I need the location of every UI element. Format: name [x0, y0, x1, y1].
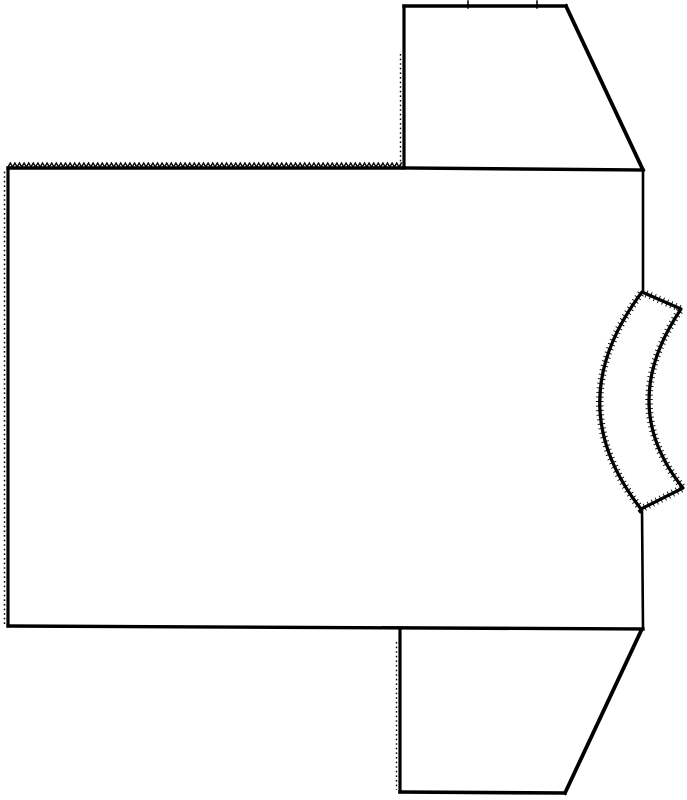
- body-panel-outline: [5, 163, 644, 629]
- bottom-sleeve-edge: [565, 631, 641, 793]
- pattern-sheet: [0, 0, 687, 800]
- body-panel-edge: [403, 168, 643, 170]
- top-sleeve-edge: [566, 6, 643, 170]
- body-panel-edge: [642, 509, 643, 629]
- bottom-sleeve-outline: [397, 629, 642, 793]
- top-sleeve-outline: [401, 1, 644, 170]
- body-panel-edge: [8, 626, 643, 629]
- bottom-sleeve-edge: [400, 792, 565, 793]
- neckband-outline: [600, 292, 683, 509]
- pattern-drawing: [0, 0, 687, 800]
- neckband-edge: [600, 292, 683, 509]
